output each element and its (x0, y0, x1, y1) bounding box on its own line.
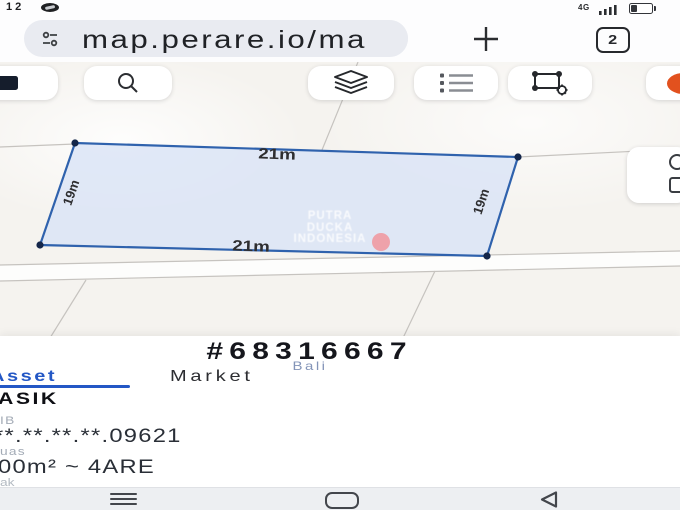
polygon-settings-button[interactable] (508, 66, 592, 100)
url-text: map.perare.io/ma (82, 26, 367, 55)
map-style-button[interactable] (0, 66, 58, 100)
active-tab-underline (0, 385, 130, 388)
map-canvas[interactable]: 21m 21m 19m 19m PUTRA DUCKA INDONESIA (0, 62, 680, 338)
tab-count: 2 (608, 29, 617, 51)
tab-switcher[interactable]: 2 (596, 27, 630, 53)
field-value-nib: **.**.**.**.09621 (0, 426, 182, 448)
tab-market[interactable]: Market (170, 368, 254, 386)
eye-icon (41, 3, 59, 12)
layers-button[interactable] (308, 66, 394, 100)
capture-icon[interactable] (670, 178, 680, 192)
browser-toolbar: map.perare.io/ma 2 (0, 15, 680, 62)
legend-button[interactable] (414, 66, 498, 100)
polygon-settings-icon (528, 68, 572, 98)
url-bar[interactable]: map.perare.io/ma (24, 20, 408, 57)
android-nav-bar (0, 487, 680, 510)
network-type-label: 4G (578, 3, 590, 12)
locate-icon[interactable] (670, 155, 680, 169)
home-icon[interactable] (325, 492, 359, 509)
parcel-region: Bali (0, 359, 620, 373)
map-style-icon (0, 76, 18, 90)
record-icon (667, 73, 680, 94)
dimension-label-top: 21m (258, 145, 296, 163)
map-tools-panel[interactable] (627, 147, 680, 203)
tab-asset[interactable]: Asset (0, 368, 57, 386)
signal-icon (598, 2, 620, 20)
legend-icon (435, 71, 477, 95)
battery-icon (629, 3, 653, 14)
new-tab-icon[interactable] (464, 24, 508, 54)
menu-icon[interactable] (110, 493, 137, 508)
watermark: PUTRA DUCKA INDONESIA (287, 211, 373, 246)
url-fade (366, 20, 408, 57)
record-button[interactable] (646, 66, 680, 100)
tune-icon[interactable] (40, 29, 60, 54)
dimension-label-bottom: 21m (232, 237, 270, 255)
back-icon[interactable] (536, 490, 562, 510)
status-time: 12 (6, 1, 24, 13)
search-button[interactable] (84, 66, 172, 100)
status-bar: 12 4G (0, 0, 680, 15)
watermark-dot (372, 233, 390, 251)
phone-screen: 12 4G map.perare.io/ma (0, 0, 680, 510)
search-icon (115, 70, 141, 96)
road (0, 251, 680, 281)
field-value-area: 00m² ~ 4ARE (0, 457, 155, 479)
parcel-detail-sheet: #68316667 Bali Asset Market ASIK IB **.*… (0, 336, 680, 487)
layers-icon (328, 69, 374, 97)
parcel-title: ASIK (0, 389, 59, 409)
